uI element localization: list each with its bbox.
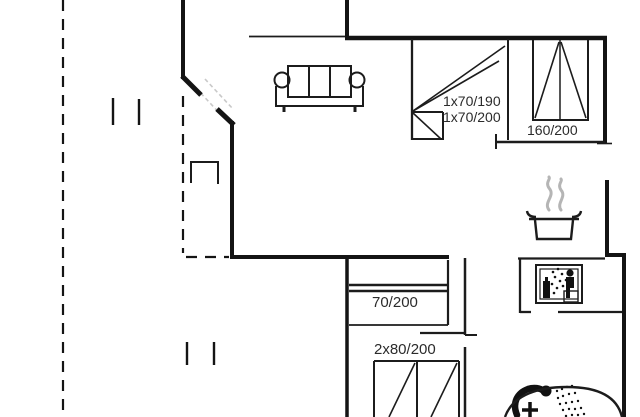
label-single-bed: 70/200	[372, 295, 418, 312]
porch-table-icon	[191, 162, 218, 184]
cooking-pot-icon	[527, 211, 581, 239]
double-bed-160	[533, 40, 588, 121]
single-bed-70	[349, 260, 448, 325]
entrance-door-icon	[196, 79, 233, 118]
terrace-boundary-dashed	[63, 0, 229, 417]
sofa-icon	[275, 66, 365, 112]
shower-icon	[515, 385, 585, 417]
label-bunk-lower-bed: 1x70/200	[443, 110, 501, 125]
label-double-bed: 160/200	[527, 123, 578, 138]
label-bunk-upper-bed: 1x70/190	[443, 94, 501, 109]
floor-plan-drawing	[0, 0, 640, 417]
label-twin-beds: 2x80/200	[374, 342, 436, 359]
steam-icon	[547, 177, 562, 210]
floor-plan: 1x70/190 1x70/200 160/200 70/200 2x80/20…	[0, 0, 640, 417]
sauna-icon	[536, 265, 582, 303]
porch-post-ticks	[113, 98, 214, 365]
twin-beds-2x80	[374, 361, 459, 417]
